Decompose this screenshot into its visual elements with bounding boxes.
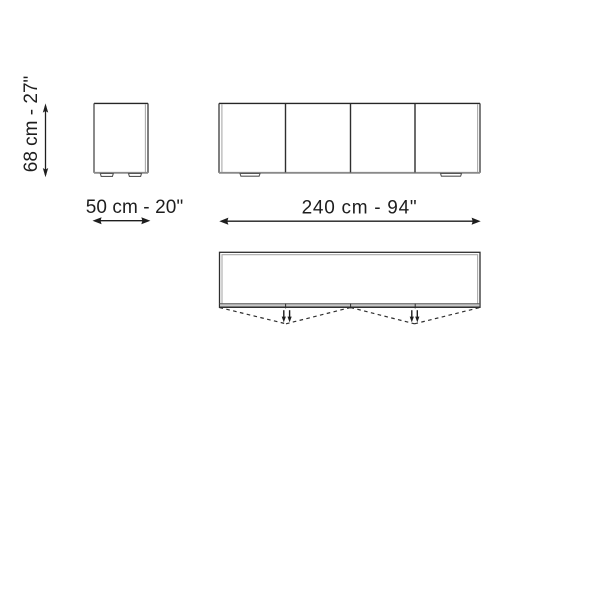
svg-text:240 cm - 94": 240 cm - 94" (302, 197, 418, 218)
svg-text:50 cm - 20": 50 cm - 20" (86, 197, 184, 218)
svg-text:68 cm - 27": 68 cm - 27" (21, 76, 42, 173)
